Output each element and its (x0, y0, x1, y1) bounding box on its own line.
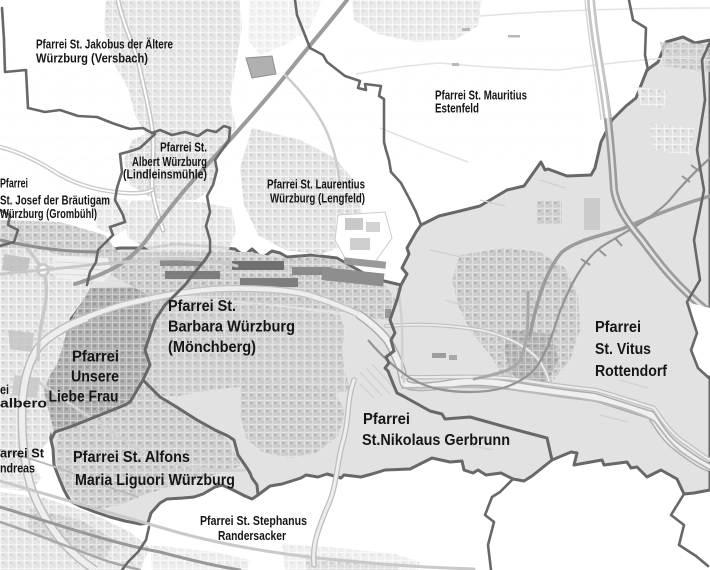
svg-text:Unsere: Unsere (71, 369, 119, 386)
svg-text:Pfarrei: Pfarrei (72, 349, 119, 366)
svg-text:Würzburg (Grombühl): Würzburg (Grombühl) (0, 207, 97, 221)
svg-text:Barbara Würzburg: Barbara Würzburg (168, 319, 295, 336)
svg-text:Pfarrei St.: Pfarrei St. (160, 141, 207, 155)
svg-text:Liebe Frau: Liebe Frau (49, 389, 119, 406)
svg-text:albero: albero (0, 397, 47, 411)
svg-text:Randersacker: Randersacker (218, 529, 286, 543)
svg-text:St. Josef der Bräutigam: St. Josef der Bräutigam (0, 194, 110, 208)
svg-text:Pfarrei: Pfarrei (0, 177, 28, 191)
svg-text:Würzburg (Versbach): Würzburg (Versbach) (36, 52, 148, 66)
svg-text:arrei St: arrei St (0, 447, 45, 461)
svg-text:Pfarrei: Pfarrei (363, 411, 410, 428)
svg-text:(Lindleinsmühle): (Lindleinsmühle) (123, 168, 207, 182)
svg-text:St. Vitus: St. Vitus (595, 341, 651, 358)
svg-text:Pfarrei: Pfarrei (595, 319, 641, 336)
svg-text:(Mönchberg): (Mönchberg) (168, 339, 256, 356)
svg-text:Würzburg (Lengfeld): Würzburg (Lengfeld) (270, 192, 365, 206)
svg-text:ei: ei (0, 383, 9, 397)
svg-text:ndreas: ndreas (0, 462, 35, 476)
svg-text:Pfarrei St.: Pfarrei St. (168, 298, 236, 315)
svg-text:Estenfeld: Estenfeld (435, 102, 479, 116)
svg-text:Maria Liguori Würzburg: Maria Liguori Würzburg (75, 472, 235, 489)
svg-text:Pfarrei St. Alfons: Pfarrei St. Alfons (73, 449, 190, 466)
svg-text:Pfarrei St. Jakobus der Ältere: Pfarrei St. Jakobus der Ältere (36, 37, 173, 52)
svg-text:St.Nikolaus Gerbrunn: St.Nikolaus Gerbrunn (362, 432, 510, 449)
svg-text:Pfarrei St. Mauritius: Pfarrei St. Mauritius (435, 89, 527, 103)
svg-text:Pfarrei St. Stephanus: Pfarrei St. Stephanus (200, 514, 307, 528)
svg-text:Rottendorf: Rottendorf (595, 363, 668, 380)
svg-text:Pfarrei St. Laurentius: Pfarrei St. Laurentius (267, 178, 365, 192)
